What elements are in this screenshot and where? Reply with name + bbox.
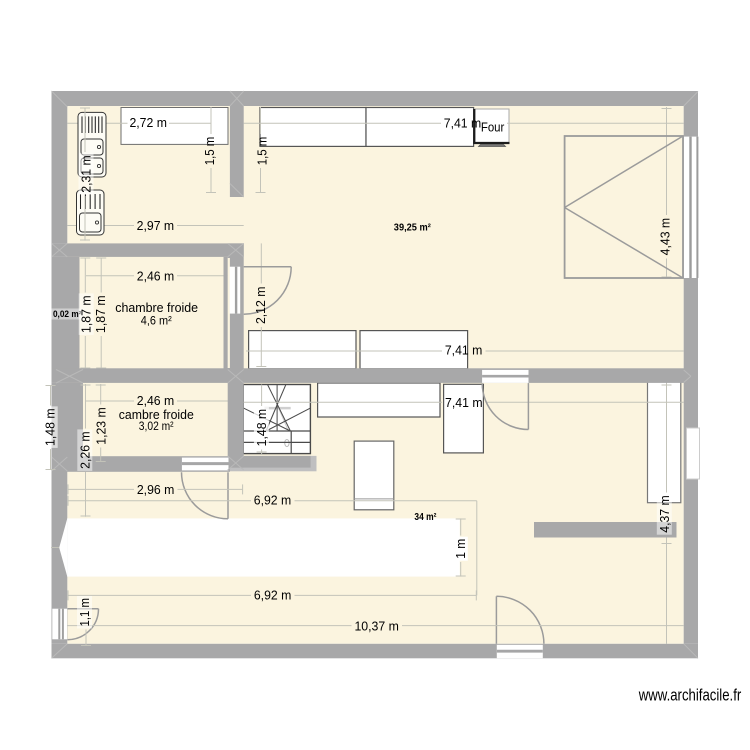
svg-text:1,1 m: 1,1 m <box>77 598 92 627</box>
svg-text:2,46 m: 2,46 m <box>137 393 175 408</box>
svg-text:0,02 m²: 0,02 m² <box>53 309 82 319</box>
svg-text:34 m²: 34 m² <box>414 512 437 523</box>
svg-text:2,12 m: 2,12 m <box>253 287 268 325</box>
svg-text:1,5 m: 1,5 m <box>255 137 270 166</box>
svg-text:6,92 m: 6,92 m <box>254 492 292 507</box>
svg-text:39,25 m²: 39,25 m² <box>394 223 432 234</box>
svg-text:1,87 m: 1,87 m <box>79 295 94 333</box>
svg-text:1,23 m: 1,23 m <box>93 407 108 445</box>
svg-text:1 m: 1 m <box>453 539 468 559</box>
svg-text:2,72 m: 2,72 m <box>129 115 167 130</box>
svg-text:6,92 m: 6,92 m <box>254 588 292 603</box>
svg-text:10,37 m: 10,37 m <box>354 619 399 634</box>
svg-text:Four: Four <box>481 119 505 134</box>
svg-text:4,37 m: 4,37 m <box>657 495 672 533</box>
svg-text:4,6 m²: 4,6 m² <box>141 313 172 327</box>
svg-text:1,48 m: 1,48 m <box>254 409 269 447</box>
svg-text:2,96 m: 2,96 m <box>137 482 175 497</box>
svg-text:4,43 m: 4,43 m <box>657 218 672 256</box>
svg-text:7,41 m: 7,41 m <box>445 342 483 357</box>
svg-text:1,48 m: 1,48 m <box>43 408 58 446</box>
svg-text:7,41 m: 7,41 m <box>445 395 483 410</box>
svg-text:7,41 m: 7,41 m <box>444 116 482 131</box>
svg-text:2,97 m: 2,97 m <box>137 218 175 233</box>
svg-text:1,87 m: 1,87 m <box>93 295 108 333</box>
svg-text:2,26 m: 2,26 m <box>77 431 92 469</box>
svg-text:2,46 m: 2,46 m <box>137 268 175 283</box>
svg-text:www.archifacile.fr: www.archifacile.fr <box>638 687 742 705</box>
svg-text:3,02 m²: 3,02 m² <box>139 419 174 433</box>
svg-text:2,31 m: 2,31 m <box>79 155 94 193</box>
svg-text:1,5 m: 1,5 m <box>202 137 217 166</box>
